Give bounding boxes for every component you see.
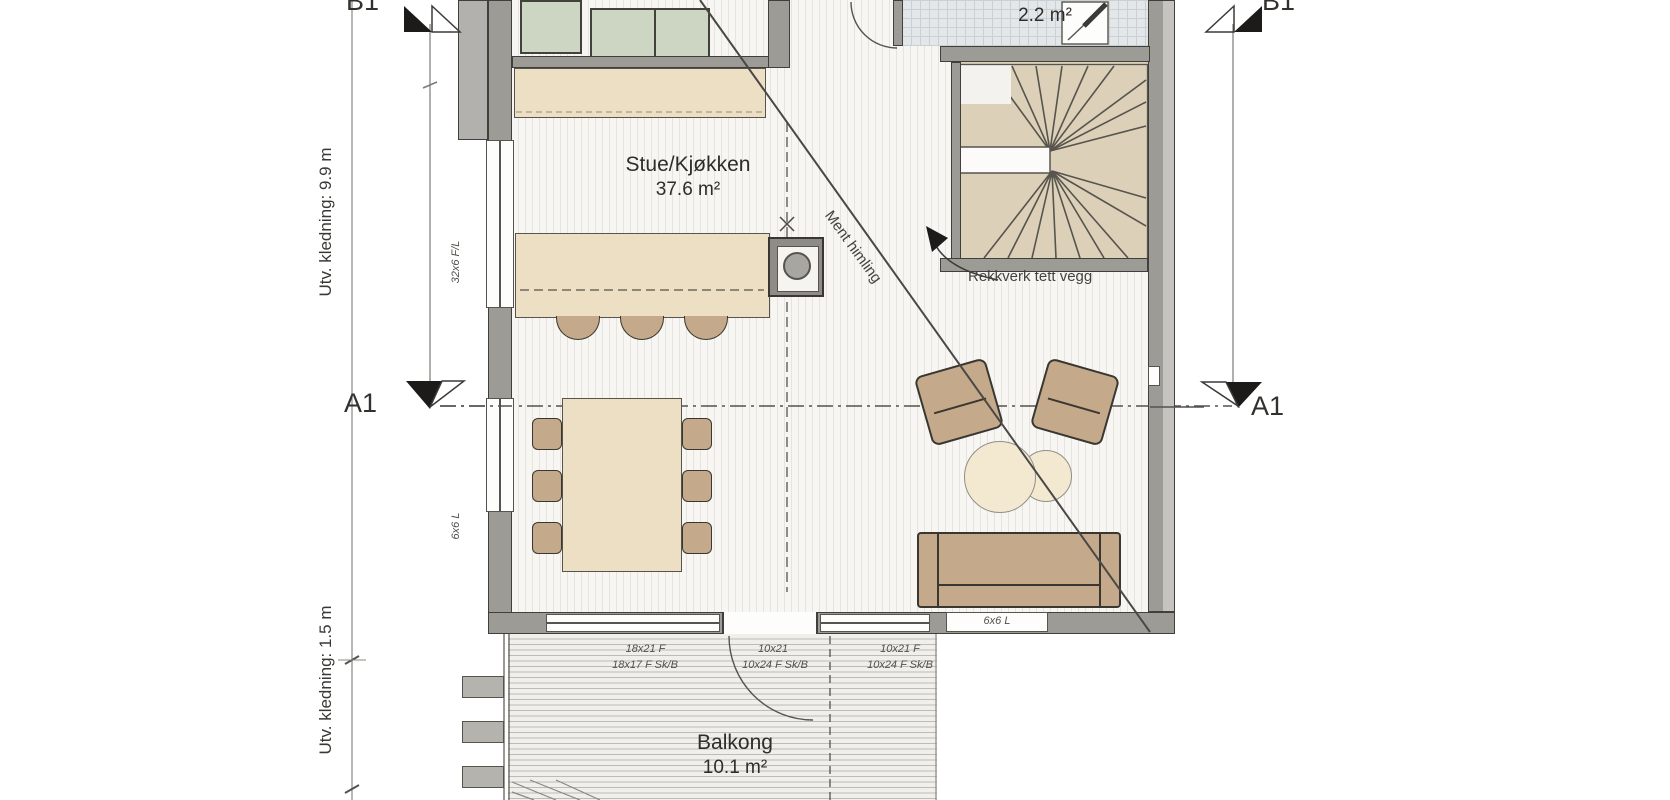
section-marker-a1-right xyxy=(1150,382,1262,408)
label-cladding-upper: Utv. kledning: 9.9 m xyxy=(316,148,336,297)
label-a1-left: A1 xyxy=(344,388,377,419)
room-label-living: Stue/Kjøkken 37.6 m² xyxy=(588,152,788,202)
room-name-balcony: Balkong xyxy=(640,730,830,756)
over-lines-layer xyxy=(0,0,1670,800)
label-cladding-lower: Utv. kledning: 1.5 m xyxy=(316,606,336,755)
door-arc-wc xyxy=(851,2,897,48)
section-marker-b1-left xyxy=(404,6,460,32)
section-marker-a1-left xyxy=(406,381,512,409)
label-bottom-opening-3-row1: 10x21 F xyxy=(855,643,945,655)
label-b1-left: B1 xyxy=(346,0,379,17)
label-railing-note: Rekkverk tett vegg xyxy=(968,268,1168,285)
label-b1-right: B1 xyxy=(1262,0,1295,17)
room-label-balcony: Balkong 10.1 m² xyxy=(640,730,830,780)
ridge-x-mark xyxy=(780,217,794,231)
label-bottom-opening-2-row2: 10x24 F Sk/B xyxy=(715,659,835,671)
label-bottom-opening-3-row2: 10x24 F Sk/B xyxy=(840,659,960,671)
label-a1-right: A1 xyxy=(1251,391,1284,422)
section-marker-b1-right xyxy=(1206,6,1262,32)
label-bottom-opening-1-row1: 18x21 F xyxy=(598,643,693,655)
ridge-line xyxy=(700,0,1150,632)
room-area-living: 37.6 m² xyxy=(588,178,788,202)
room-name-living: Stue/Kjøkken xyxy=(588,152,788,178)
room-area-balcony: 10.1 m² xyxy=(640,756,830,780)
balcony-corner-boards xyxy=(512,780,600,800)
label-bottom-opening-1-row2: 18x17 F Sk/B xyxy=(585,659,705,671)
label-window-left-lower: 6x6 L xyxy=(450,513,462,540)
floor-plan-canvas: B1 B1 A1 A1 Utv. kledning: 9.9 m Utv. kl… xyxy=(0,0,1670,800)
balcony-rail-left xyxy=(504,634,509,800)
label-bottom-opening-2-row1: 10x21 xyxy=(733,643,813,655)
label-window-left-upper: 32x6 F/L xyxy=(450,241,462,284)
label-vent-bottom-right: 6x6 L xyxy=(946,615,1048,627)
room-area-wc: 2.2 m² xyxy=(985,4,1105,28)
room-label-wc: WC 2.2 m² xyxy=(985,0,1105,28)
